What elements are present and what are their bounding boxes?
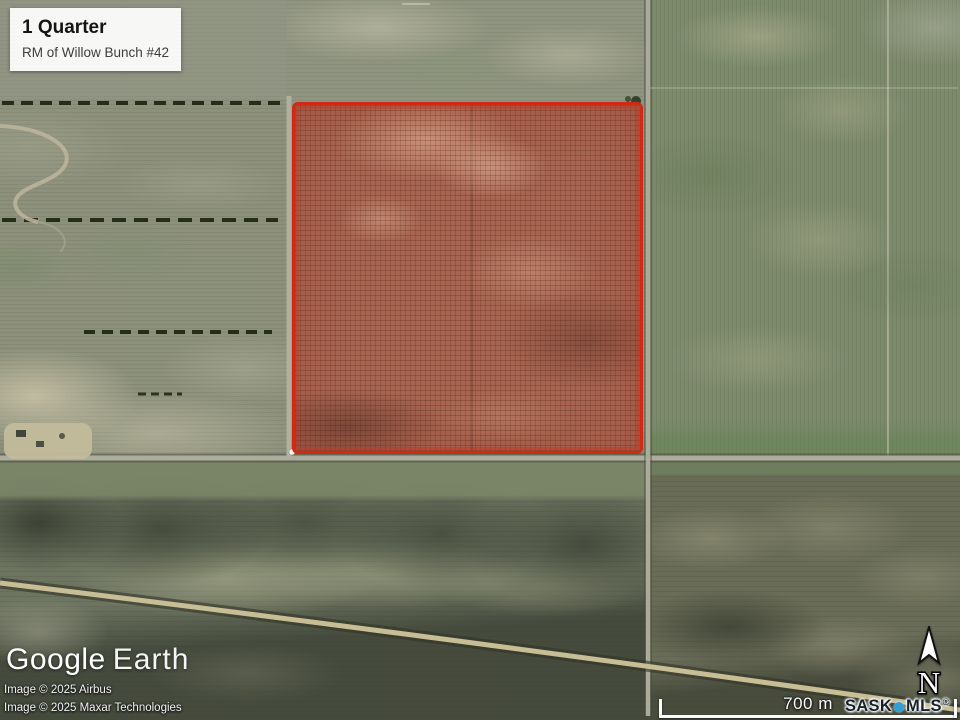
mls-dot-icon: [894, 702, 904, 712]
compass: N: [906, 626, 952, 700]
farmstead-yard: [4, 423, 92, 459]
farm-building: [59, 433, 65, 439]
attribution-maxar: Image © 2025 Maxar Technologies: [4, 702, 182, 714]
google-earth-logo-google: Google: [6, 643, 106, 676]
attribution-airbus: Image © 2025 Airbus: [4, 684, 112, 696]
field-trail: [0, 126, 67, 222]
sask-mls-text-sask: SASK: [845, 697, 892, 716]
north-arrow-icon: [917, 626, 941, 666]
farm-building: [16, 430, 26, 437]
parcel-info-title: 1 Quarter: [22, 17, 169, 40]
highlighted-parcel[interactable]: [292, 102, 643, 454]
field-trail: [38, 222, 65, 252]
compass-north-label: N: [918, 666, 940, 700]
parcel-info-card: 1 Quarter RM of Willow Bunch #42: [10, 8, 181, 71]
parcel-info-subtitle: RM of Willow Bunch #42: [22, 45, 169, 60]
google-earth-logo: GoogleEarth: [6, 644, 189, 676]
satellite-map[interactable]: 1 Quarter RM of Willow Bunch #42 GoogleE…: [0, 0, 960, 720]
farm-building: [36, 441, 44, 447]
compass-north-letter: N: [909, 666, 949, 700]
google-earth-logo-earth: Earth: [113, 643, 190, 676]
